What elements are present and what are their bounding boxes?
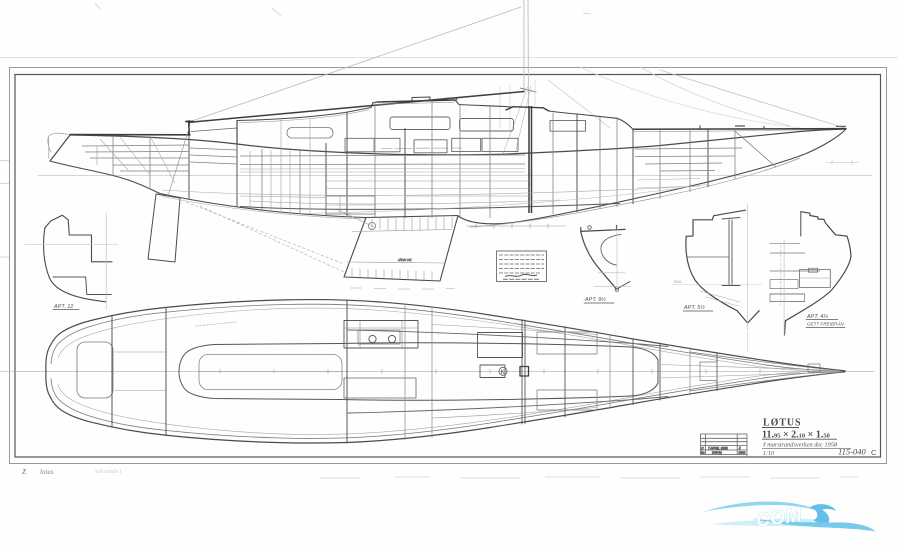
svg-text:sch artels t: sch artels t xyxy=(95,469,122,475)
svg-text:DATUM: DATUM xyxy=(712,451,722,455)
svg-text:APT. 4¼: APT. 4¼ xyxy=(806,314,828,320)
svg-text:C: C xyxy=(871,448,877,457)
svg-text:1:10: 1:10 xyxy=(763,451,774,457)
svg-text:ℓ marstrandsverken dec 1958: ℓ marstrandsverken dec 1958 xyxy=(762,442,838,449)
svg-text:LØTUS: LØTUS xyxy=(763,418,801,429)
svg-text:APT. 5½: APT. 5½ xyxy=(683,304,705,311)
svg-text:DWL: DWL xyxy=(674,280,682,284)
svg-text:Z: Z xyxy=(22,468,26,476)
svg-text:K: K xyxy=(501,370,505,376)
svg-text:SIGN: SIGN xyxy=(739,451,746,455)
svg-text:APT. 12: APT. 12 xyxy=(53,304,73,310)
svg-text:APT. 9½: APT. 9½ xyxy=(584,296,606,303)
svg-text:GETT FREIBRÄN: GETT FREIBRÄN xyxy=(807,321,844,327)
svg-text:115-040: 115-040 xyxy=(838,447,866,457)
svg-text:lotus: lotus xyxy=(40,468,54,476)
svg-text:JÄRN VIK: JÄRN VIK xyxy=(398,258,413,262)
svg-text:No: No xyxy=(701,451,705,455)
